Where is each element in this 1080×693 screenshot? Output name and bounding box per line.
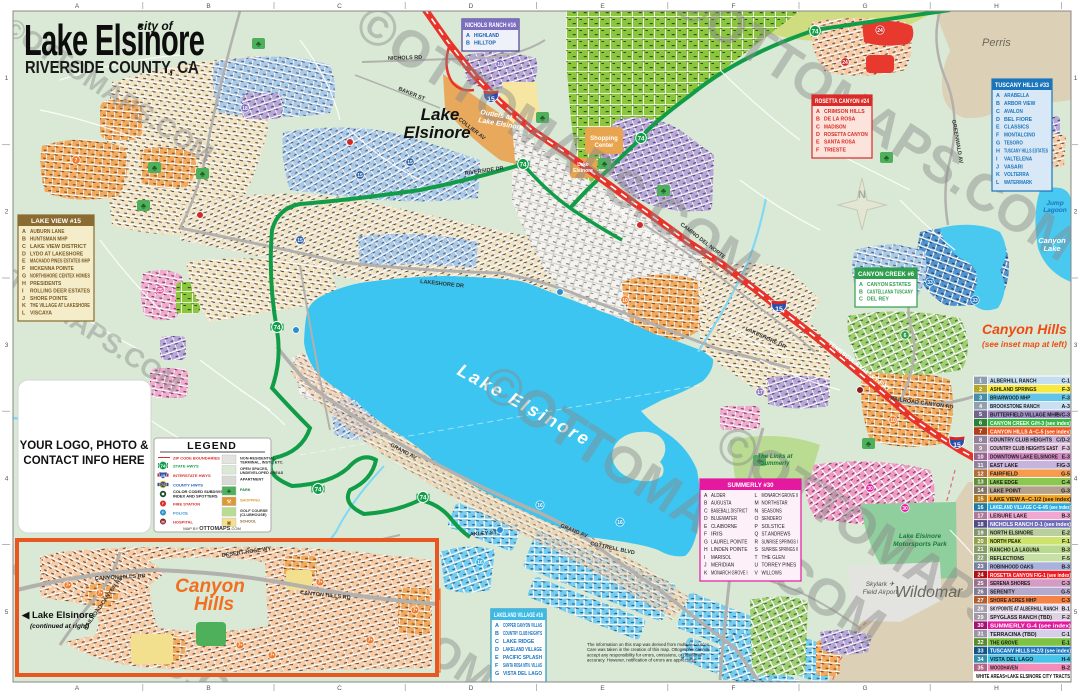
svg-text:F-3: F-3 [1062,396,1070,402]
svg-text:LEISURE LAKE: LEISURE LAKE [990,514,1028,520]
svg-text:F: F [704,532,707,538]
svg-text:15: 15 [297,238,303,244]
svg-text:5: 5 [5,609,9,616]
svg-text:LAKE EDGE: LAKE EDGE [990,480,1018,486]
svg-text:24: 24 [842,60,848,66]
svg-text:F: F [732,3,736,10]
svg-text:E: E [22,259,26,265]
svg-text:ST.ANDREWS: ST.ANDREWS [762,532,792,538]
svg-text:FIRE STATION: FIRE STATION [173,502,200,507]
svg-text:Motorsports Park: Motorsports Park [893,541,947,548]
svg-text:BUTTERFIELD VILLAGE MHP: BUTTERFIELD VILLAGE MHP [990,412,1058,418]
svg-text:G: G [495,671,499,677]
svg-text:HILLTOP: HILLTOP [474,41,496,47]
svg-text:VISTA DEL LAGO: VISTA DEL LAGO [990,657,1033,663]
svg-text:18: 18 [242,106,248,112]
svg-text:THE VILLAGE AT LAKESHORE: THE VILLAGE AT LAKESHORE [30,303,90,309]
svg-text:BASEBALL DISTRICT: BASEBALL DISTRICT [711,508,748,514]
svg-text:H: H [994,3,999,10]
svg-text:10: 10 [890,418,896,424]
svg-text:CLASSICS: CLASSICS [1004,125,1029,131]
svg-text:NORTH PEAK: NORTH PEAK [990,539,1021,545]
svg-text:5: 5 [1074,609,1078,616]
svg-text:SERENA SHORES: SERENA SHORES [990,581,1031,587]
svg-text:LEGEND: LEGEND [187,440,237,452]
svg-text:ARBOR VIEW: ARBOR VIEW [1004,101,1036,107]
svg-text:1: 1 [979,378,982,384]
svg-text:G-5: G-5 [1061,472,1070,478]
svg-text:WILLOWS: WILLOWS [762,570,783,576]
svg-text:E: E [600,685,605,692]
svg-text:MONTALCINO: MONTALCINO [1004,133,1035,139]
svg-text:B: B [495,631,499,637]
svg-text:SHOPPING: SHOPPING [240,499,260,503]
svg-text:SHORE ACRES MHP: SHORE ACRES MHP [990,598,1037,604]
svg-text:TUSCANY HILLS H-2/3 (see index: TUSCANY HILLS H-2/3 (see index) [990,649,1071,655]
svg-text:♣: ♣ [200,170,206,179]
svg-text:CANYON ESTATES: CANYON ESTATES [867,282,911,288]
svg-text:Center: Center [594,143,614,149]
svg-text:E: E [600,3,605,10]
svg-text:SUMMERLY #30: SUMMERLY #30 [727,482,774,489]
svg-text:6: 6 [904,333,907,339]
svg-text:ZIP CODE BOUNDARIES: ZIP CODE BOUNDARIES [173,456,220,461]
svg-text:SPYGLASS RANCH (TBD): SPYGLASS RANCH (TBD) [990,615,1052,621]
svg-text:LAKE POINT: LAKE POINT [990,488,1022,494]
svg-text:HUNTSMAN MHP: HUNTSMAN MHP [30,236,68,242]
svg-text:H: H [161,520,164,525]
svg-text:TORREY PINES: TORREY PINES [762,563,797,569]
svg-text:A-3: A-3 [1061,404,1070,410]
svg-text:16: 16 [537,503,543,509]
svg-text:FAIRFIELD: FAIRFIELD [990,472,1018,478]
svg-text:MADISON: MADISON [824,124,846,130]
svg-text:accuracy. However, notificatio: accuracy. However, notification of error… [587,658,698,663]
svg-text:74: 74 [160,463,166,468]
svg-text:R: R [755,539,759,545]
svg-text:8: 8 [979,438,982,444]
svg-text:SANTA ROSA: SANTA ROSA [824,140,855,146]
svg-text:C-3: C-3 [1061,581,1070,587]
svg-text:ALBERHILL RANCH: ALBERHILL RANCH [990,379,1037,385]
svg-text:F: F [732,685,736,692]
svg-text:4: 4 [5,476,9,483]
svg-text:25: 25 [977,581,983,587]
svg-text:J: J [22,296,25,302]
svg-text:12: 12 [977,471,983,477]
svg-text:C: C [337,3,342,10]
svg-text:TERRACINA (TBD): TERRACINA (TBD) [990,632,1037,638]
svg-text:STATE HWYS: STATE HWYS [173,464,199,469]
svg-text:B-3: B-3 [1061,564,1070,570]
svg-text:UNDEVELOPED AREAS: UNDEVELOPED AREAS [240,471,284,475]
svg-text:Elsinore: Elsinore [573,168,593,174]
svg-text:B: B [206,3,210,10]
svg-text:7: 7 [75,158,78,164]
svg-text:SCHOOL: SCHOOL [240,520,257,524]
svg-text:LYDO AT LAKESHORE: LYDO AT LAKESHORE [30,251,84,257]
svg-text:32: 32 [977,640,983,646]
svg-text:SUNRISE SPRINGS I: SUNRISE SPRINGS I [762,539,799,545]
svg-text:D: D [469,685,474,692]
svg-text:DOWNTOWN LAKE ELSINORE: DOWNTOWN LAKE ELSINORE [990,455,1058,461]
svg-text:NICHOLS RANCH D-1 (see index): NICHOLS RANCH D-1 (see index) [990,522,1071,528]
svg-text:11: 11 [978,463,984,469]
svg-text:ROBINHOOD OAKS: ROBINHOOD OAKS [990,564,1034,570]
svg-text:NORTHSHORE CENTEX HOMES: NORTHSHORE CENTEX HOMES [30,274,90,280]
svg-text:C: C [859,297,863,303]
svg-text:15: 15 [407,160,413,166]
svg-text:B: B [22,236,26,242]
svg-text:D: D [816,132,820,138]
svg-text:COUNTY HWYS: COUNTY HWYS [173,483,203,488]
svg-text:30: 30 [977,623,983,629]
svg-text:LAKELAND VILLAGE: LAKELAND VILLAGE [503,647,542,653]
svg-text:B-3: B-3 [1061,547,1070,553]
svg-text:MCKENNA POINTE: MCKENNA POINTE [30,266,74,272]
svg-text:ROLLING DEER ESTATES: ROLLING DEER ESTATES [30,288,90,294]
svg-text:Field Airport: Field Airport [863,589,899,596]
svg-text:74: 74 [161,483,165,487]
svg-text:SKYPOINTE AT ALBERHILL RANCH: SKYPOINTE AT ALBERHILL RANCH [990,607,1058,613]
svg-text:B: B [859,289,863,295]
svg-text:WOODHAVEN: WOODHAVEN [990,666,1018,672]
svg-text:E: E [996,125,1000,131]
svg-text:YOUR LOGO, PHOTO &: YOUR LOGO, PHOTO & [20,440,149,452]
svg-text:28: 28 [977,606,983,612]
svg-text:3: 3 [5,342,9,349]
svg-text:REFLECTIONS: REFLECTIONS [990,556,1025,562]
svg-text:SOLSTICE: SOLSTICE [762,524,786,530]
svg-text:SANTA ROSA MTN. VILLAS: SANTA ROSA MTN. VILLAS [503,663,542,669]
svg-text:19: 19 [977,530,983,536]
svg-text:H: H [704,547,708,553]
svg-text:LAKE VIEW A–C-1/2 (see index): LAKE VIEW A–C-1/2 (see index) [990,497,1071,503]
svg-text:5: 5 [979,412,982,418]
svg-text:E-2: E-2 [1062,531,1070,537]
svg-text:7•: 7• [368,638,373,644]
svg-text:SEASONS: SEASONS [762,508,783,514]
svg-text:31: 31 [977,632,983,638]
svg-text:CRIMSON HILLS: CRIMSON HILLS [824,109,865,115]
svg-text:Lake: Lake [1043,244,1060,253]
svg-text:22: 22 [977,556,983,562]
svg-text:34: 34 [977,657,984,663]
svg-text:H: H [994,685,999,692]
svg-text:BEL FIORE: BEL FIORE [1004,117,1033,123]
svg-text:B-3: B-3 [1061,514,1070,520]
svg-text:MERIDIAN: MERIDIAN [711,563,735,569]
svg-text:35: 35 [977,665,983,671]
svg-text:B: B [816,117,820,123]
svg-text:33: 33 [972,298,978,304]
svg-text:G: G [862,685,867,692]
svg-text:ROSETTA CANYON F/G-1 (see inde: ROSETTA CANYON F/G-1 (see index) [990,573,1071,579]
svg-text:TESORO: TESORO [1004,141,1023,147]
svg-text:B: B [466,41,470,47]
svg-text:MONARCH GROVE II: MONARCH GROVE II [762,493,799,499]
svg-text:16: 16 [977,505,983,511]
svg-text:7•: 7• [238,643,243,649]
svg-text:◀ Lake Elsinore: ◀ Lake Elsinore [21,610,94,621]
svg-text:C-1: C-1 [1061,632,1070,638]
svg-text:K: K [996,172,1000,178]
svg-text:4: 4 [1074,476,1078,483]
svg-text:ASHLAND SPRINGS: ASHLAND SPRINGS [990,387,1037,393]
svg-text:MARISOL: MARISOL [711,555,731,561]
svg-text:CANYON CREEK G/H-3 (see index): CANYON CREEK G/H-3 (see index) [990,421,1071,427]
svg-text:15: 15 [953,442,961,449]
svg-text:LAUREL POINTE: LAUREL POINTE [711,539,748,545]
svg-text:Lake: Lake [421,105,460,124]
svg-text:Elsinore: Elsinore [403,123,470,142]
svg-text:BLUEWATER: BLUEWATER [711,516,737,522]
svg-text:APARTMENT: APARTMENT [240,478,264,482]
svg-text:A: A [859,282,863,288]
svg-text:33: 33 [977,649,983,655]
svg-text:♣: ♣ [227,489,231,495]
svg-text:BRIARWOOD MHP: BRIARWOOD MHP [990,396,1031,402]
svg-text:MACHADO PINES ESTATES MHP: MACHADO PINES ESTATES MHP [30,259,90,265]
svg-text:MONARCH GROVE I: MONARCH GROVE I [711,570,748,576]
svg-text:29: 29 [977,615,983,621]
svg-text:F-2: F-2 [1062,615,1070,621]
svg-text:33: 33 [927,280,933,286]
svg-text:D: D [495,647,499,653]
svg-text:RANCHO LA LAGUNA: RANCHO LA LAGUNA [990,547,1040,553]
svg-text:A: A [816,109,820,115]
svg-text:SENDERO: SENDERO [762,516,782,522]
svg-text:♣: ♣ [152,164,158,173]
svg-text:THE GROVE: THE GROVE [990,640,1018,646]
svg-text:I: I [704,555,705,561]
svg-text:74: 74 [520,161,527,168]
svg-text:L: L [755,493,758,499]
svg-text:C: C [816,124,820,130]
svg-text:NICHOLS RANCH #16: NICHOLS RANCH #16 [465,22,516,29]
svg-text:NORTH ELSINORE: NORTH ELSINORE [990,531,1034,537]
svg-text:7•: 7• [98,591,103,597]
svg-text:E-1: E-1 [1062,640,1070,646]
svg-text:CANYON CREEK #6: CANYON CREEK #6 [858,271,915,278]
svg-text:7•: 7• [270,653,275,659]
svg-text:3: 3 [1074,342,1078,349]
svg-text:LINDEN POINTE: LINDEN POINTE [711,547,748,553]
svg-text:G-5: G-5 [1061,590,1070,596]
svg-text:DEL REY: DEL REY [867,297,889,303]
svg-text:C-4: C-4 [1061,480,1070,486]
svg-text:COUNTRY CLUB HEIGHTS EAST: COUNTRY CLUB HEIGHTS EAST [990,446,1059,452]
svg-text:10: 10 [977,454,983,460]
svg-text:B-1: B-1 [1061,607,1070,613]
svg-text:VOLTERRA: VOLTERRA [1004,172,1029,178]
svg-text:(continued at right): (continued at right) [30,623,89,630]
svg-text:AVALON: AVALON [1004,109,1023,115]
svg-text:PARK: PARK [240,488,251,492]
svg-text:F-3: F-3 [1062,446,1070,452]
svg-text:Wildomar: Wildomar [895,584,963,601]
svg-text:TERMINAL, INSTL, ETC.: TERMINAL, INSTL, ETC. [240,461,283,465]
svg-text:74: 74 [274,324,281,331]
svg-text:30: 30 [902,506,908,512]
svg-text:CANYON HILLS A–C-5 (see index): CANYON HILLS A–C-5 (see index) [990,429,1071,435]
svg-text:1: 1 [1074,75,1078,82]
svg-text:23: 23 [977,564,983,570]
svg-text:O: O [755,516,759,522]
svg-text:2: 2 [5,209,9,216]
svg-text:E: E [816,140,820,146]
svg-text:AUGUSTA: AUGUSTA [711,501,732,507]
svg-text:LAKELAND VILLAGE #16: LAKELAND VILLAGE #16 [494,612,543,619]
svg-text:B/C-3: B/C-3 [1056,412,1070,418]
svg-text:TRIESTE: TRIESTE [824,147,846,153]
svg-text:U: U [755,563,759,569]
svg-text:D: D [704,516,708,522]
svg-text:T: T [755,555,758,561]
svg-text:B-2: B-2 [1061,666,1070,672]
svg-text:CLAIBORNE: CLAIBORNE [711,524,738,530]
svg-text:INDEX AND SPOTTERS: INDEX AND SPOTTERS [173,494,218,499]
svg-text:COUNTRY CLUB HEIGHTS: COUNTRY CLUB HEIGHTS [503,631,542,637]
svg-text:16: 16 [617,520,623,526]
svg-text:E-3: E-3 [1062,455,1070,461]
svg-text:INTERSTATE HWYS: INTERSTATE HWYS [173,473,211,478]
svg-text:C-3: C-3 [1061,598,1070,604]
svg-text:D: D [996,117,1000,123]
svg-text:14: 14 [977,488,984,494]
svg-text:G: G [22,274,26,280]
svg-text:COUNTRY CLUB HEIGHTS: COUNTRY CLUB HEIGHTS [990,438,1052,444]
svg-text:P: P [162,510,165,515]
svg-text:16: 16 [477,560,483,566]
svg-text:A: A [22,229,26,235]
svg-text:18: 18 [497,62,503,68]
svg-text:Summerly: Summerly [760,461,790,467]
svg-text:15: 15 [977,497,983,503]
svg-text:C: C [337,685,342,692]
svg-text:15: 15 [775,306,783,313]
svg-text:ROSETTA CANYON: ROSETTA CANYON [824,132,868,138]
svg-text:NORTHSTAR: NORTHSTAR [762,501,788,507]
svg-text:24: 24 [977,573,984,579]
svg-text:C: C [996,109,1000,115]
svg-text:TUSCANY HILLS #33: TUSCANY HILLS #33 [995,82,1049,89]
svg-text:C: C [495,639,499,645]
svg-text:9: 9 [979,446,982,452]
svg-text:CASTELLANA TUSCANY: CASTELLANA TUSCANY [867,289,913,295]
svg-text:HIGHLAND: HIGHLAND [474,33,499,39]
svg-text:Hills: Hills [194,594,234,615]
svg-text:RIVERSIDE COUNTY, CA: RIVERSIDE COUNTY, CA [25,58,199,78]
svg-text:DE LA ROSA: DE LA ROSA [824,117,855,123]
svg-text:74: 74 [812,28,819,35]
svg-text:AUBURN LANE: AUBURN LANE [30,229,65,235]
svg-text:7•: 7• [413,608,418,614]
svg-text:F-3: F-3 [1062,387,1070,393]
svg-text:2: 2 [1074,209,1078,216]
svg-text:7•: 7• [318,580,323,586]
svg-text:K: K [22,303,26,309]
svg-text:(see inset map at left): (see inset map at left) [982,339,1067,349]
svg-text:H: H [996,148,1000,154]
svg-text:LAKE VIEW #15: LAKE VIEW #15 [31,218,82,225]
svg-text:SUMMERLY G-4 (see index): SUMMERLY G-4 (see index) [990,623,1071,629]
svg-text:21: 21 [977,547,983,553]
svg-text:Q: Q [755,532,759,538]
svg-text:Shopping: Shopping [590,136,618,142]
svg-text:N: N [755,508,759,514]
svg-text:G: G [862,3,867,10]
svg-text:G-3: G-3 [1061,488,1070,494]
svg-text:B: B [206,685,210,692]
svg-text:25: 25 [157,288,163,294]
svg-text:A: A [466,33,470,39]
svg-text:♣: ♣ [256,40,262,49]
svg-text:SERENITY: SERENITY [990,590,1015,596]
svg-text:17: 17 [977,514,983,520]
svg-text:A: A [495,623,499,629]
svg-text:15: 15 [357,173,363,179]
svg-text:Jump: Jump [1046,200,1063,207]
svg-text:Canyon Hills ➤: Canyon Hills ➤ [982,321,1080,337]
svg-text:TUSCANY HILLS ESTATES: TUSCANY HILLS ESTATES [1004,148,1048,154]
svg-text:1: 1 [5,75,9,82]
svg-text:VISCAYA: VISCAYA [30,311,52,317]
svg-text:D: D [469,3,474,10]
svg-text:3: 3 [979,395,982,401]
svg-text:20: 20 [977,539,983,545]
svg-text:♣: ♣ [866,440,872,449]
svg-text:26: 26 [977,589,983,595]
svg-text:C-1: C-1 [1061,379,1070,385]
svg-text:B: B [996,101,1000,107]
svg-text:Perris: Perris [982,37,1011,49]
svg-text:H: H [22,281,26,287]
svg-text:WATERMARK: WATERMARK [1004,180,1032,186]
svg-text:17: 17 [757,390,763,396]
svg-text:D: D [22,251,26,257]
svg-text:ARABELLA: ARABELLA [1004,93,1029,99]
svg-text:F/G-3: F/G-3 [1056,463,1070,469]
svg-text:♣: ♣ [141,202,147,211]
svg-text:6: 6 [979,421,982,427]
svg-text:IRIS: IRIS [711,532,723,538]
svg-text:Skylark ✈: Skylark ✈ [866,581,895,588]
svg-text:SHORE POINTE: SHORE POINTE [30,296,68,302]
svg-text:Lagoon: Lagoon [1043,207,1066,214]
svg-text:LAKE RIDGE: LAKE RIDGE [503,639,535,645]
svg-text:VISTA DEL LAGO: VISTA DEL LAGO [503,671,542,677]
svg-text:Lake Elsinore: Lake Elsinore [899,533,942,540]
svg-text:C: C [22,244,26,250]
svg-text:EAST LAKE: EAST LAKE [990,463,1018,469]
svg-text:N: N [858,189,866,201]
svg-text:PRESIDENTS: PRESIDENTS [30,281,62,287]
svg-text:10: 10 [622,298,628,304]
svg-text:30: 30 [867,486,873,492]
svg-text:POLICE: POLICE [173,511,188,516]
svg-text:13: 13 [977,480,983,486]
svg-text:J: J [996,164,999,170]
svg-text:E: E [495,655,499,661]
svg-text:G: G [996,141,1000,147]
svg-text:THE GLEN: THE GLEN [762,555,786,561]
svg-text:74: 74 [315,486,322,493]
svg-text:H-4: H-4 [1061,657,1070,663]
svg-text:VASARI: VASARI [1004,164,1023,170]
svg-text:74: 74 [638,135,645,142]
svg-text:HOSPITAL: HOSPITAL [173,520,193,525]
